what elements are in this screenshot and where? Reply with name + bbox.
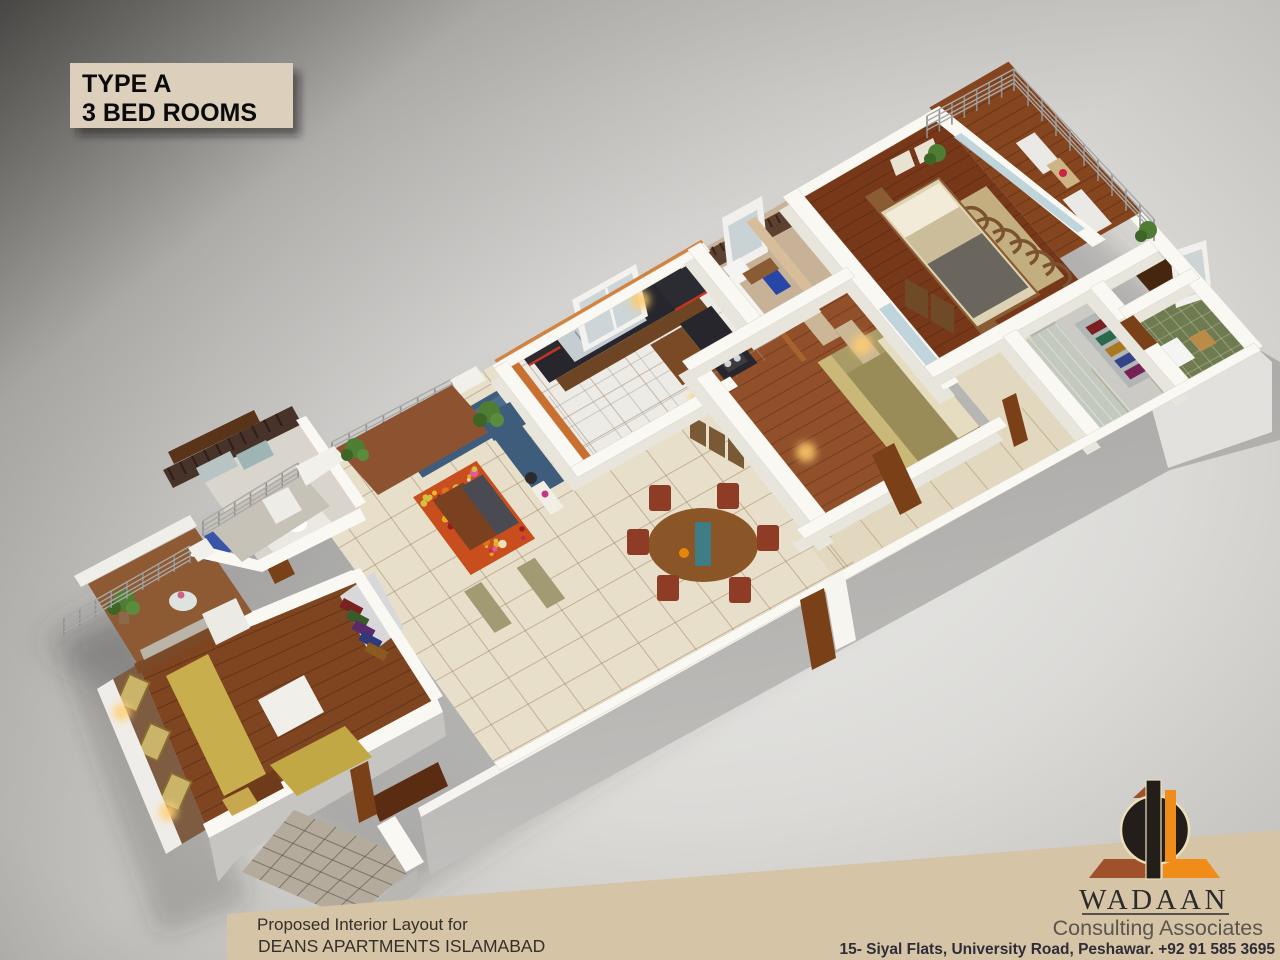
svg-text:DEANS APARTMENTS ISLAMABAD: DEANS APARTMENTS ISLAMABAD <box>258 936 545 956</box>
svg-text:WADAAN: WADAAN <box>1079 884 1229 916</box>
svg-text:TYPE A: TYPE A <box>82 70 171 98</box>
svg-text:15- Siyal Flats, University Ro: 15- Siyal Flats, University Road, Peshaw… <box>839 941 1275 958</box>
svg-text:3 BED ROOMS: 3 BED ROOMS <box>82 99 257 127</box>
svg-text:Consulting Associates: Consulting Associates <box>1053 916 1263 940</box>
svg-text:Proposed Interior Layout for: Proposed Interior Layout for <box>257 915 468 934</box>
